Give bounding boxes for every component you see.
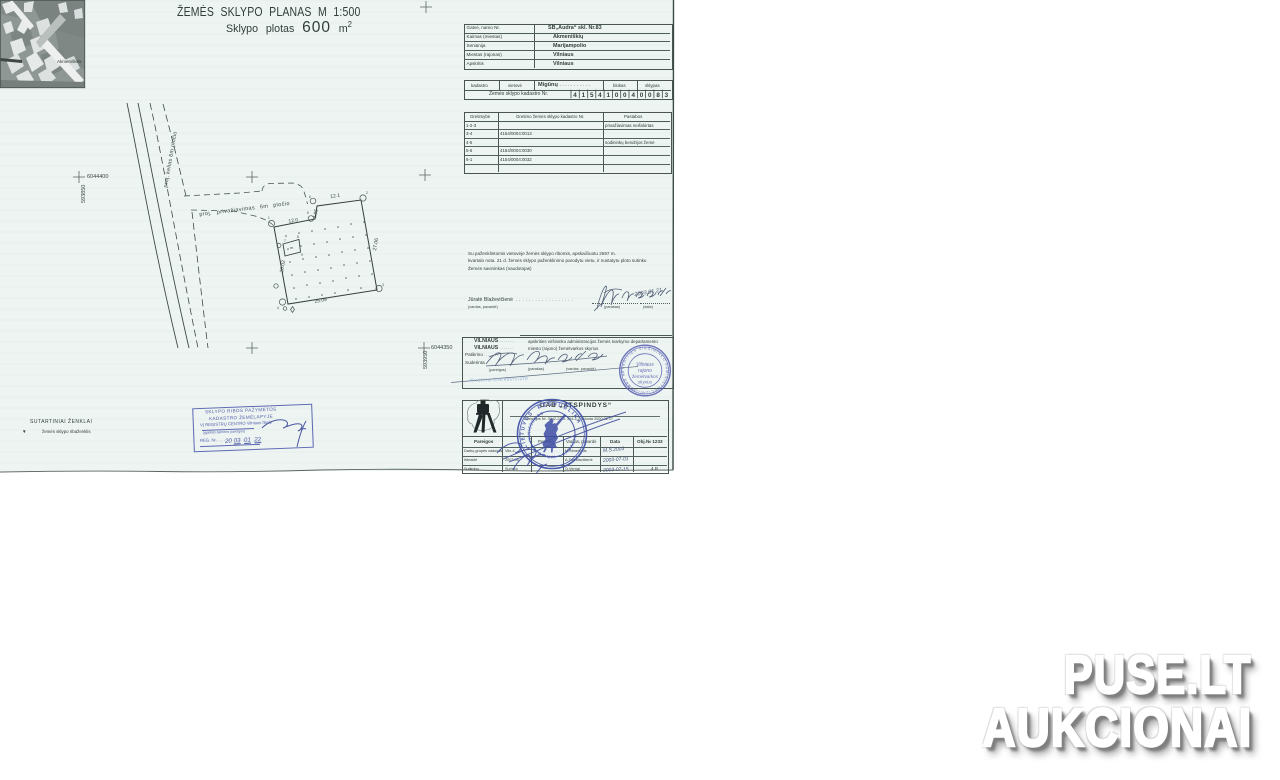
svg-text:LIETUVOS RESPUBLIKA UAB „A: LIETUVOS RESPUBLIKA UAB „Atspindys“ bbox=[0, 0, 584, 449]
svg-text:GEODEZINIAI MATAVIMAI · KADAST: GEODEZINIAI MATAVIMAI · KADASTRAS bbox=[0, 0, 578, 460]
